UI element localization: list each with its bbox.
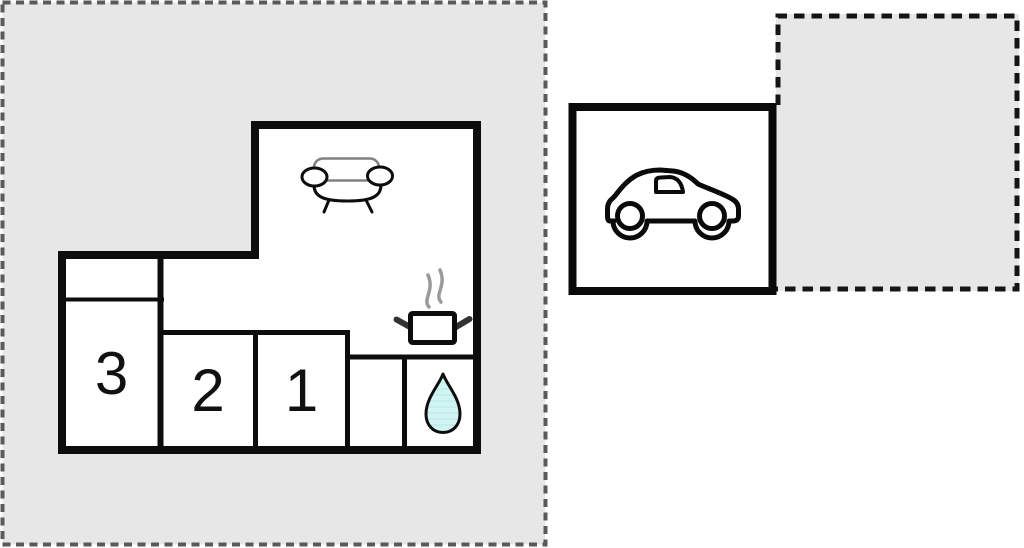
room-1-number: 1	[258, 335, 345, 446]
room-2-number: 2	[163, 335, 253, 446]
floor-plan-page: 3 2 1	[0, 0, 1024, 548]
right-plot-area	[776, 14, 1019, 291]
room-3-number: 3	[65, 302, 158, 446]
pot-body	[411, 314, 455, 343]
car-window	[656, 177, 683, 192]
sofa-armrest-right	[368, 167, 393, 185]
car-front-wheel	[618, 204, 643, 229]
right-plot-fill	[776, 14, 1019, 291]
sofa-armrest-left	[302, 168, 327, 186]
floor-plan-scene	[0, 0, 1024, 548]
car-rear-wheel	[700, 204, 725, 229]
